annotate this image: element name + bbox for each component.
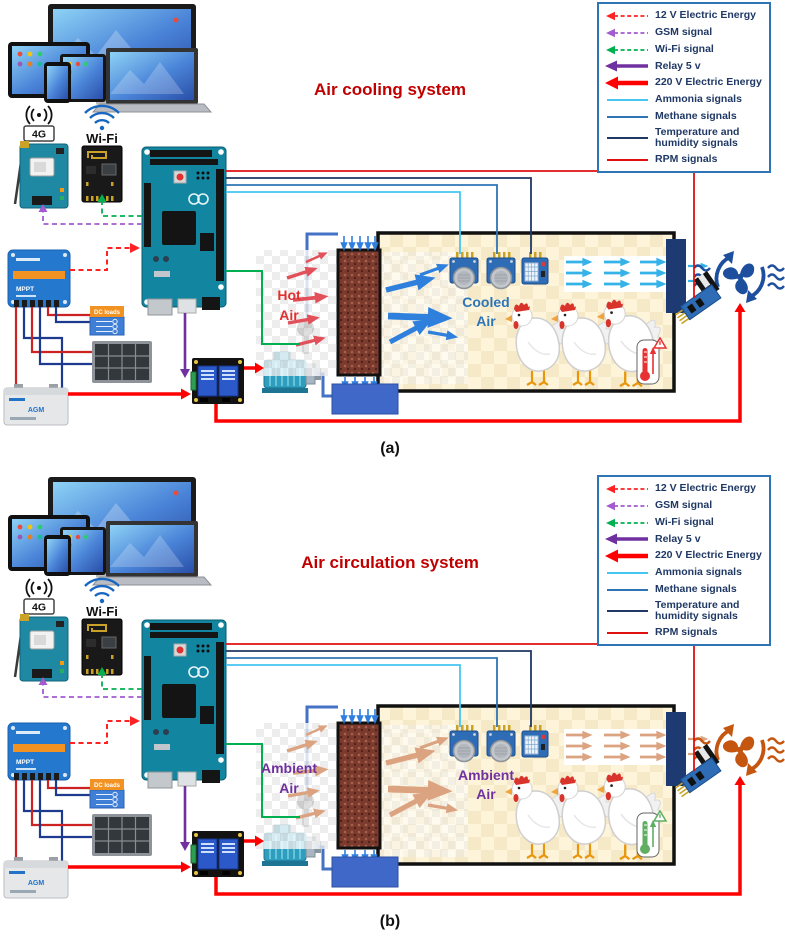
relay-module — [191, 358, 244, 404]
pin-header — [216, 642, 224, 754]
legend-item: RPM signals — [605, 153, 763, 167]
legend-label: 220 V Electric Energy — [655, 550, 762, 562]
barrel-jack — [202, 297, 220, 310]
gsm-label: 4G — [32, 602, 46, 614]
fan-housing-bar — [666, 239, 686, 313]
barrel-jack — [202, 770, 220, 783]
pin-header — [150, 623, 212, 630]
legend-item: Temperature and humidity signals — [605, 127, 763, 151]
serial-connector — [32, 669, 52, 678]
legend-label: RPM signals — [655, 627, 717, 639]
capacitor — [163, 256, 169, 262]
gsm-4g-module: 4G — [15, 579, 68, 681]
wire-12v — [70, 243, 140, 270]
gsm-4g-module: 4G — [15, 106, 68, 208]
panel-letter: (a) — [380, 440, 400, 457]
solid-arrow-glyph — [605, 532, 649, 546]
legend-item: Temperature and humidity signals — [605, 600, 763, 624]
legend-label: 12 V Electric Energy — [655, 483, 756, 495]
svg-text:Air: Air — [476, 313, 496, 329]
orange-band — [13, 744, 65, 752]
icon-strip — [10, 417, 36, 420]
mcu-chip — [162, 211, 196, 245]
serial-connector — [32, 196, 52, 205]
oscillator — [154, 271, 170, 277]
legend-label: Ammonia signals — [655, 94, 742, 106]
battery-top — [4, 861, 68, 868]
legend-item: Methane signals — [605, 110, 763, 124]
dc-loads-label: DC loads — [94, 310, 121, 316]
usb-port — [148, 299, 172, 315]
chip — [200, 233, 214, 251]
wire-relay-5v — [180, 313, 190, 378]
battery: AGM — [4, 857, 68, 898]
legend-label: Ammonia signals — [655, 567, 742, 579]
legend-label: Wi-Fi signal — [655, 44, 714, 56]
reset-button-cap — [177, 647, 184, 654]
mppt-controller: MPPT — [8, 723, 70, 780]
legend-label: 12 V Electric Energy — [655, 10, 756, 22]
water-tank — [332, 384, 398, 414]
sim-card — [34, 162, 46, 172]
legend-item: Ammonia signals — [605, 566, 763, 580]
chip — [200, 706, 214, 724]
legend-label: GSM signal — [655, 27, 712, 39]
led-green — [60, 196, 64, 200]
legend-label: Methane signals — [655, 584, 737, 596]
oscillator — [154, 744, 170, 750]
terminal-block — [191, 845, 196, 863]
power-connector — [178, 299, 196, 313]
line-glyph — [605, 583, 649, 597]
figure-page: 4G Wi-Fi — [0, 0, 785, 945]
water-drips-top — [342, 236, 378, 249]
line-glyph — [605, 131, 649, 145]
dc-loads-label: DC loads — [94, 783, 121, 789]
fan-housing-bar — [666, 712, 686, 786]
dc-loads-box: DC loads — [90, 306, 124, 335]
legend-label: Methane signals — [655, 111, 737, 123]
mppt-label: MPPT — [16, 286, 34, 293]
legend-label: Wi-Fi signal — [655, 517, 714, 529]
battery-label: AGM — [28, 407, 45, 414]
wifi-label: Wi-Fi — [86, 131, 118, 146]
user-devices-cluster — [8, 477, 211, 585]
pin-header — [150, 632, 218, 638]
legend-label: RPM signals — [655, 154, 717, 166]
sun-dot — [174, 491, 179, 496]
capacitor — [153, 256, 159, 262]
system-panel: 4G Wi-Fi — [0, 473, 785, 945]
dashed-arrow-glyph — [605, 516, 649, 530]
sun-dot — [174, 18, 179, 23]
line-glyph — [605, 626, 649, 640]
orange-band — [13, 271, 65, 279]
brand-mark — [16, 258, 40, 261]
spec-text-line — [16, 768, 36, 770]
led-green — [60, 669, 64, 673]
dashed-arrow-glyph — [605, 9, 649, 23]
solid-arrow-glyph — [605, 59, 649, 73]
led-orange — [60, 661, 64, 665]
legend-item: Wi-Fi signal — [605, 516, 763, 530]
line-glyph — [605, 110, 649, 124]
cooling-pad — [338, 250, 380, 375]
battery: AGM — [4, 384, 68, 425]
chip — [86, 166, 96, 174]
signal-legend: 12 V Electric Energy GSM signal Wi-Fi si… — [597, 475, 771, 646]
solar-panel — [92, 341, 152, 383]
sim-card — [34, 635, 46, 645]
legend-item: 12 V Electric Energy — [605, 482, 763, 496]
line-glyph — [605, 153, 649, 167]
water-tank — [332, 857, 398, 887]
legend-item: 12 V Electric Energy — [605, 9, 763, 23]
power-connector — [178, 772, 196, 786]
dc-loads-box: DC loads — [90, 779, 124, 808]
dashed-arrow-glyph — [605, 499, 649, 513]
pin-header — [150, 159, 218, 165]
mppt-label: MPPT — [16, 759, 34, 766]
arduino-board — [142, 147, 226, 315]
user-devices-cluster — [8, 4, 211, 112]
legend-label: Relay 5 v — [655, 61, 701, 73]
dc-wiring — [16, 780, 92, 861]
water-drips-top — [342, 709, 378, 722]
antenna-signal-icon — [26, 579, 51, 597]
brand-mark — [16, 731, 40, 734]
phone-screen — [47, 66, 68, 99]
chip — [102, 637, 116, 648]
solar-panel — [92, 814, 152, 856]
gsm-label: 4G — [32, 129, 46, 141]
pin-header — [150, 150, 212, 157]
spec-text-line — [16, 295, 36, 297]
legend-item: 220 V Electric Energy — [605, 549, 763, 563]
legend-item: Wi-Fi signal — [605, 43, 763, 57]
capacitor — [163, 729, 169, 735]
pin-header — [144, 656, 151, 720]
svg-text:Air: Air — [279, 307, 299, 323]
wifi-label: Wi-Fi — [86, 604, 118, 619]
dc-wiring — [16, 307, 92, 388]
dashed-arrow-glyph — [605, 482, 649, 496]
pin-header — [144, 183, 151, 247]
chip — [86, 639, 96, 647]
wire-relay-5v — [180, 786, 190, 851]
legend-item: Ammonia signals — [605, 93, 763, 107]
icon-strip — [10, 890, 36, 893]
panel-letter: (b) — [380, 913, 400, 930]
signal-legend: 12 V Electric Energy GSM signal Wi-Fi si… — [597, 2, 771, 173]
mcu-chip — [162, 684, 196, 718]
arduino-board — [142, 620, 226, 788]
line-glyph — [605, 604, 649, 618]
brand-mark — [9, 398, 25, 401]
legend-item: GSM signal — [605, 499, 763, 513]
line-glyph — [605, 93, 649, 107]
chip — [56, 621, 64, 627]
chip — [56, 148, 64, 154]
mppt-controller: MPPT — [8, 250, 70, 307]
legend-item: Relay 5 v — [605, 59, 763, 73]
usb-port — [148, 772, 172, 788]
legend-item: RPM signals — [605, 626, 763, 640]
relay-module — [191, 831, 244, 877]
led-orange — [60, 188, 64, 192]
legend-label: Relay 5 v — [655, 534, 701, 546]
dashed-arrow-glyph — [605, 26, 649, 40]
antenna-connector — [20, 614, 29, 621]
legend-item: 220 V Electric Energy — [605, 76, 763, 90]
wifi-module: Wi-Fi — [82, 579, 122, 675]
svg-text:Hot: Hot — [277, 287, 301, 303]
phone-screen — [47, 539, 68, 572]
capacitor — [153, 729, 159, 735]
battery-label: AGM — [28, 880, 45, 887]
brand-mark — [9, 871, 25, 874]
dashed-arrow-glyph — [605, 43, 649, 57]
svg-text:Cooled: Cooled — [462, 294, 509, 310]
cooling-pad — [338, 723, 380, 848]
battery-top — [4, 388, 68, 395]
terminal-block — [191, 372, 196, 390]
panel-title: Air circulation system — [301, 553, 479, 572]
pump-base — [262, 861, 308, 866]
legend-label: GSM signal — [655, 500, 712, 512]
svg-text:Ambient: Ambient — [261, 760, 317, 776]
antenna-connector — [20, 141, 29, 148]
legend-item: GSM signal — [605, 26, 763, 40]
heavy-arrow-glyph — [605, 549, 649, 563]
pin-header — [216, 169, 224, 281]
legend-label: 220 V Electric Energy — [655, 77, 762, 89]
antenna-signal-icon — [26, 106, 51, 124]
legend-item: Relay 5 v — [605, 532, 763, 546]
chip — [102, 164, 116, 175]
system-panel: 4G Wi-Fi — [0, 0, 785, 473]
legend-label: Temperature and humidity signals — [655, 600, 763, 624]
heavy-arrow-glyph — [605, 76, 649, 90]
svg-text:Air: Air — [279, 780, 299, 796]
legend-label: Temperature and humidity signals — [655, 127, 763, 151]
panel-title: Air cooling system — [314, 80, 466, 99]
line-glyph — [605, 566, 649, 580]
reset-button-cap — [177, 174, 184, 181]
wifi-module: Wi-Fi — [82, 106, 122, 202]
wire-12v — [70, 716, 140, 743]
pump-base — [262, 388, 308, 393]
legend-item: Methane signals — [605, 583, 763, 597]
svg-text:Air: Air — [476, 786, 496, 802]
svg-text:Ambient: Ambient — [458, 767, 514, 783]
